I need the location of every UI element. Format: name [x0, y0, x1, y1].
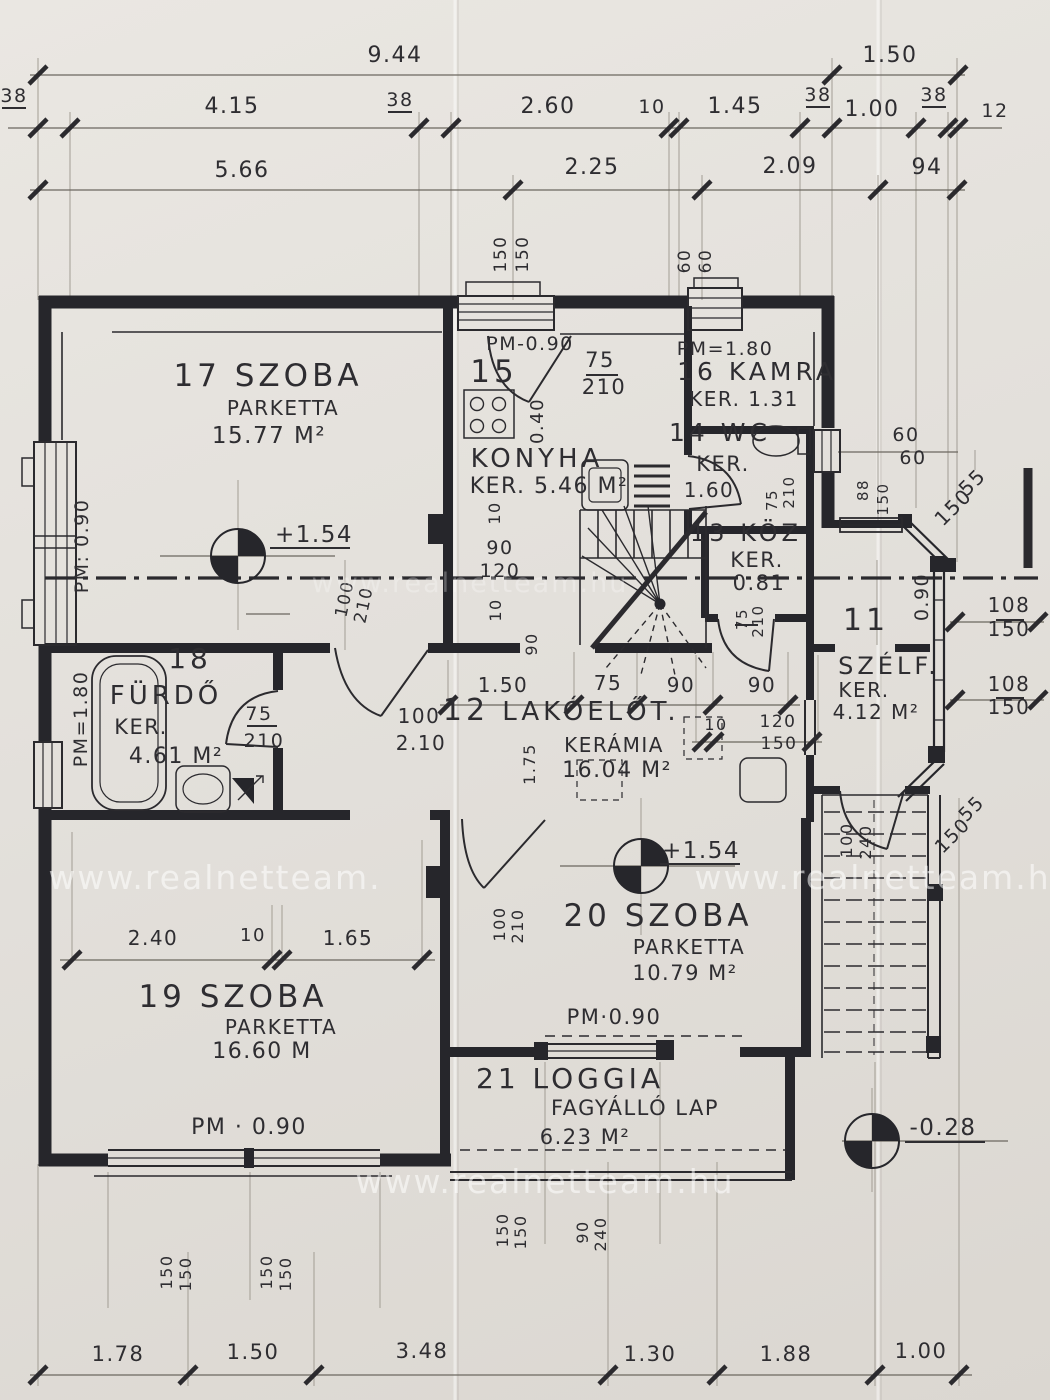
plan-label: KER.	[730, 548, 784, 572]
plan-label: 150	[176, 1256, 195, 1291]
plan-label: KER.	[114, 715, 168, 739]
flue-triangle	[232, 778, 254, 804]
plan-label: 90	[748, 673, 776, 697]
plan-label: 210	[508, 908, 527, 943]
plan-label: 210	[780, 475, 798, 508]
plan-label: 38	[920, 84, 947, 106]
plan-label: KER. 5.46 M²	[470, 474, 629, 499]
plan-label: 12	[981, 100, 1008, 122]
plan-label: 90	[522, 632, 541, 655]
plan-label: SZÉLF.	[838, 651, 940, 680]
plan-label: KER.	[838, 678, 889, 702]
level-marker-1	[211, 529, 265, 583]
chimney-block-2	[426, 866, 448, 898]
plan-label: 1.78	[92, 1342, 145, 1366]
stove	[464, 390, 514, 438]
plan-label: 3.48	[396, 1339, 449, 1363]
plan-label: PM: 0.90	[71, 499, 93, 594]
plan-label: 150	[276, 1256, 295, 1291]
plan-label: 16 KAMRA	[677, 357, 837, 386]
plan-label: 21 LOGGIA	[476, 1062, 664, 1095]
plan-label: PARKETTA	[225, 1015, 337, 1039]
plan-label: KONYHA	[471, 444, 604, 474]
plan-label: +1.54	[275, 522, 353, 548]
plan-label: 1.65	[323, 926, 374, 950]
plan-label: 19 SZOBA	[138, 979, 327, 1015]
floor-plan-drawing: 9.441.50384.15382.60101.45381.0038125.66…	[0, 0, 1050, 1400]
plan-label: 2.09	[763, 154, 818, 179]
plan-label: 150	[257, 1254, 276, 1289]
plan-label: 210	[582, 375, 627, 399]
plan-label: 60	[696, 249, 716, 274]
plan-label: 38	[804, 84, 831, 106]
plan-label: 1.50	[227, 1340, 280, 1364]
plan-label: PM·0.90	[567, 1005, 662, 1029]
plan-label: 90	[486, 537, 513, 559]
plan-label: 10	[485, 501, 504, 524]
plan-label: 17 SZOBA	[173, 358, 362, 394]
plan-label: 0.90	[911, 573, 933, 621]
plan-label: KERÁMIA	[564, 733, 664, 757]
plan-label: 1.88	[760, 1342, 813, 1366]
plan-label: 90	[573, 1220, 592, 1243]
plan-label: FAGYÁLLÓ LAP	[551, 1095, 719, 1120]
level-marker-3	[845, 1114, 899, 1168]
doormat	[740, 758, 786, 802]
plan-label: FÜRDŐ	[110, 679, 223, 711]
watermark-text: www.realnetteam.hu	[694, 858, 1050, 897]
watermark-text: www.realnetteam.	[48, 858, 381, 897]
plan-label: KER. 1.31	[689, 387, 799, 411]
plan-label: 6.23 M²	[540, 1125, 630, 1149]
chimney-block-1	[428, 514, 448, 544]
plan-label: 240	[591, 1216, 610, 1251]
plan-label: 0.81	[733, 571, 786, 595]
plan-label: 150	[513, 236, 533, 273]
plan-label: 1.50	[863, 43, 918, 68]
plan-label: 1.00	[845, 97, 900, 122]
plan-label: 38	[386, 89, 413, 111]
floor-plan-page: 9.441.50384.15382.60101.45381.0038125.66…	[0, 0, 1050, 1400]
plan-label: 4.12 M²	[833, 700, 920, 724]
plan-label: 2.60	[521, 94, 576, 119]
plan-label: 38	[0, 85, 27, 107]
plan-label: 94	[912, 155, 943, 180]
plan-label: 12	[443, 693, 489, 728]
plan-label: 10	[240, 925, 266, 946]
plan-label: 75	[594, 671, 622, 695]
plan-label: 1.30	[624, 1342, 677, 1366]
plan-label: 150	[511, 1214, 530, 1249]
plan-label: 10.79 M²	[632, 961, 737, 985]
level-marker-2	[614, 839, 668, 893]
annex-posts	[898, 514, 956, 763]
plan-label: PARKETTA	[633, 935, 745, 959]
plan-label: 5.66	[215, 158, 270, 183]
plan-label: 100	[490, 906, 509, 941]
plan-label: 10	[638, 96, 665, 118]
plan-label: 13 KÖZ	[690, 518, 802, 547]
plan-label: 18	[168, 642, 212, 675]
plan-label: 4.15	[205, 94, 260, 119]
plan-label: 75	[585, 348, 615, 372]
plan-label: 100	[837, 822, 856, 857]
plan-label: 150	[493, 1212, 512, 1247]
plan-label: 60	[899, 447, 926, 469]
plan-label: 60	[675, 249, 695, 274]
plan-label: 4.61 M²	[129, 744, 223, 769]
plan-label: PM-0.90	[486, 333, 574, 355]
plan-label: 150	[157, 1254, 176, 1289]
plan-label: 2.40	[128, 926, 179, 950]
plan-label: 108	[988, 672, 1031, 696]
plan-label: 75	[245, 703, 272, 725]
plan-label: 150	[874, 482, 892, 515]
plan-label: 11	[843, 603, 889, 638]
plan-label: 1.45	[708, 94, 763, 119]
plan-label: 16.04 M²	[562, 758, 672, 783]
washbasin	[176, 766, 230, 812]
plan-label: 210	[749, 604, 767, 637]
plan-label: 150	[988, 617, 1031, 641]
plan-label: 10	[486, 598, 505, 621]
plan-label: 75	[763, 489, 781, 511]
plan-label: 60	[892, 424, 919, 446]
plan-label: 88	[854, 479, 872, 501]
plan-label: 100	[398, 704, 441, 728]
plan-label: 150	[988, 695, 1031, 719]
watermark-text: www.realnetteam.hu	[312, 568, 629, 599]
plan-label: 2.10	[396, 731, 447, 755]
plan-label: 108	[988, 593, 1031, 617]
plan-label: 2.25	[565, 155, 620, 180]
plan-label: 150	[491, 236, 511, 273]
plan-label: 16.60 M	[212, 1039, 311, 1064]
plan-label: 10	[704, 715, 727, 734]
plan-label: PM · 0.90	[191, 1115, 307, 1140]
plan-label: 15.77 M²	[212, 423, 326, 449]
plan-label: -0.28	[909, 1115, 976, 1141]
plan-label: 9.44	[368, 43, 423, 68]
plan-label: PARKETTA	[227, 396, 339, 420]
plan-label: 15	[470, 354, 517, 390]
plan-label: 0.40	[527, 398, 548, 444]
plan-label: 1.75	[520, 743, 539, 785]
plan-label: 240	[856, 824, 875, 859]
plan-label: KER.	[696, 452, 750, 476]
plan-label: LAKÓELŐT.	[502, 695, 679, 727]
plan-label: 1.60	[684, 478, 735, 502]
plan-label: 120	[760, 712, 797, 732]
plan-label: 150	[761, 734, 798, 754]
plan-label: PM=1.80	[70, 671, 92, 768]
plan-label: 210	[244, 730, 285, 752]
plan-label: 14 WC	[669, 418, 771, 447]
plan-label: 1.00	[895, 1339, 948, 1363]
plan-label: 20 SZOBA	[563, 898, 752, 934]
plan-label: 90	[667, 673, 695, 697]
watermark-text: www.realnetteam.hu	[355, 1162, 734, 1201]
